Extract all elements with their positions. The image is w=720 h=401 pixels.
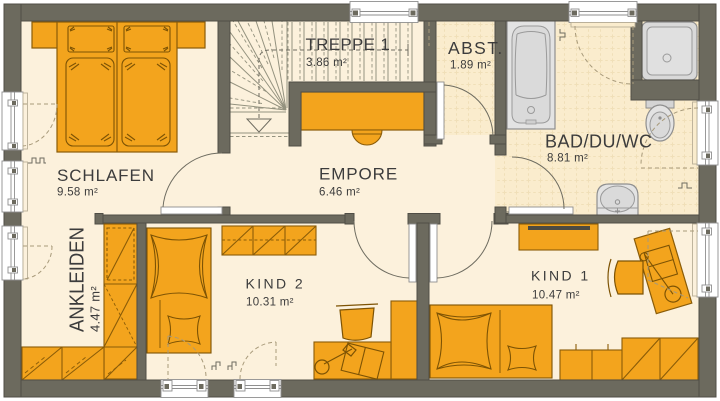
svg-text:3.86 m²: 3.86 m² <box>306 57 347 69</box>
svg-text:10.47 m²: 10.47 m² <box>532 290 580 302</box>
svg-text:EMPORE: EMPORE <box>319 165 398 184</box>
svg-text:6.46 m²: 6.46 m² <box>319 187 360 199</box>
svg-text:KIND 2: KIND 2 <box>246 276 306 292</box>
svg-text:10.31 m²: 10.31 m² <box>246 297 294 309</box>
svg-text:ABST.: ABST. <box>448 38 504 58</box>
svg-text:TREPPE 1: TREPPE 1 <box>306 35 391 54</box>
svg-text:4.47 m²: 4.47 m² <box>88 286 103 332</box>
svg-text:BAD/DU/WC: BAD/DU/WC <box>545 132 653 152</box>
svg-text:ANKLEIDEN: ANKLEIDEN <box>67 227 89 332</box>
svg-text:1.89 m²: 1.89 m² <box>450 60 491 72</box>
svg-text:8.81 m²: 8.81 m² <box>547 153 588 165</box>
svg-text:KIND 1: KIND 1 <box>531 268 591 284</box>
svg-text:9.58 m²: 9.58 m² <box>57 187 98 199</box>
svg-text:SCHLAFEN: SCHLAFEN <box>57 166 155 185</box>
